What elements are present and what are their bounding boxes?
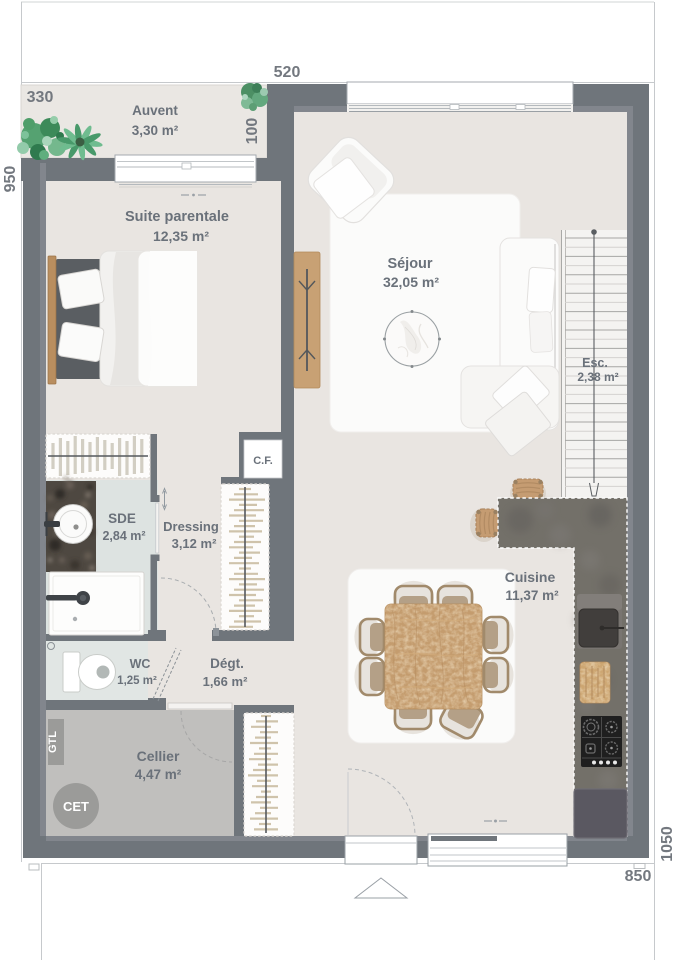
svg-text:CET: CET [63, 799, 89, 814]
svg-text:Suite parentale: Suite parentale [125, 209, 229, 225]
svg-text:C.F.: C.F. [253, 455, 273, 467]
svg-text:Séjour: Séjour [387, 256, 432, 272]
svg-text:12,35 m²: 12,35 m² [153, 228, 209, 244]
svg-text:100: 100 [244, 118, 261, 145]
svg-text:1,25 m²: 1,25 m² [117, 675, 157, 687]
svg-text:520: 520 [274, 64, 301, 81]
svg-text:850: 850 [625, 868, 652, 885]
svg-text:SDE: SDE [108, 511, 136, 526]
svg-text:Cellier: Cellier [137, 748, 180, 764]
svg-text:4,47 m²: 4,47 m² [135, 767, 182, 782]
svg-text:2,38 m²: 2,38 m² [577, 370, 618, 384]
svg-text:Dégt.: Dégt. [210, 656, 244, 671]
svg-text:11,37 m²: 11,37 m² [505, 588, 559, 603]
svg-text:Auvent: Auvent [132, 103, 178, 118]
svg-text:3,30 m²: 3,30 m² [132, 123, 179, 138]
svg-text:3,12 m²: 3,12 m² [172, 536, 217, 551]
svg-text:330: 330 [27, 89, 54, 106]
svg-text:GTL: GTL [47, 731, 59, 753]
svg-text:WC: WC [130, 657, 151, 671]
svg-text:950: 950 [2, 166, 19, 193]
svg-text:Dressing: Dressing [163, 519, 219, 534]
svg-text:Cuisine: Cuisine [505, 569, 556, 585]
svg-text:1050: 1050 [659, 826, 676, 862]
svg-text:2,84 m²: 2,84 m² [102, 529, 145, 543]
svg-text:32,05 m²: 32,05 m² [383, 274, 439, 290]
svg-text:Esc.: Esc. [582, 356, 608, 370]
svg-text:1,66 m²: 1,66 m² [203, 674, 248, 689]
